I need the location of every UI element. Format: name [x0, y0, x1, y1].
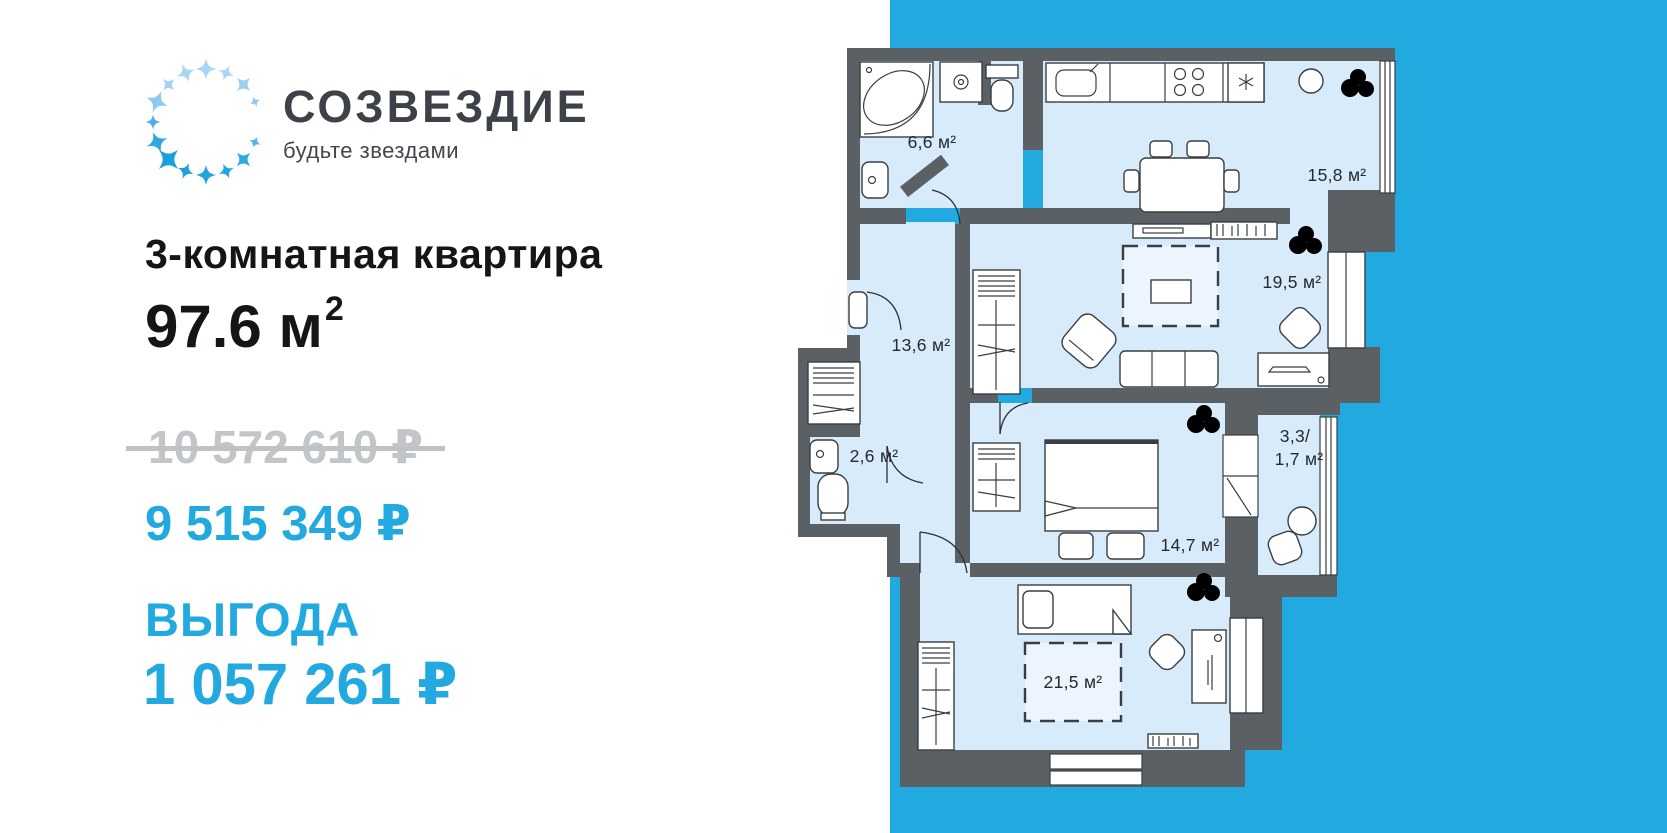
- bedroom-wardrobe-icon: [973, 443, 1020, 511]
- nightstand-icon: [1107, 533, 1144, 559]
- washing-machine-icon: [940, 62, 982, 102]
- tv-stand-icon: [1133, 224, 1211, 238]
- room-label-balcony-2: 1,7 м²: [1275, 449, 1324, 469]
- flat-title: 3-комнатная квартира: [145, 231, 602, 278]
- benefit-label: ВЫГОДА: [145, 592, 360, 647]
- new-price: 9 515 349 ₽: [145, 495, 411, 552]
- room2-desk-icon: [1192, 630, 1226, 703]
- brand-tagline: будьте звездами: [283, 138, 590, 164]
- brand-logo: СОЗВЕЗДИЕ будьте звездами: [133, 54, 653, 194]
- bath-sink-icon: [862, 162, 888, 198]
- brand-name: СОЗВЕЗДИЕ: [283, 84, 590, 129]
- strikethrough-line: [126, 446, 445, 451]
- room-label-bedroom-2: 21,5 м²: [1044, 672, 1103, 692]
- wc-toilet-icon: [818, 474, 848, 520]
- star-ring-icon: [133, 54, 277, 194]
- wc-sink-icon: [810, 440, 838, 473]
- kitchen-counter: [1046, 63, 1264, 102]
- benefit-value: 1 057 261 ₽: [143, 650, 458, 718]
- bathtub-icon: [853, 59, 935, 137]
- room-label-balcony-1: 3,3/: [1280, 426, 1310, 446]
- brand-text: СОЗВЕЗДИЕ будьте звездами: [283, 84, 590, 164]
- floorplan: 6,6 м² 15,8 м² 19,5 м² 13,6 м² 2,6 м² 14…: [780, 40, 1445, 792]
- room-label-kitchen: 15,8 м²: [1308, 165, 1367, 185]
- closet-icon: [808, 362, 860, 424]
- room2-shelf-icon: [1148, 734, 1198, 748]
- room-label-bedroom: 14,7 м²: [1161, 535, 1220, 555]
- balcony-table-icon: [1288, 507, 1316, 535]
- nightstand-icon: [1059, 533, 1093, 559]
- sofa-icon: [1120, 351, 1218, 387]
- two-door-wardrobe-icon: [1230, 618, 1263, 713]
- hall-wardrobe-icon: [973, 270, 1020, 394]
- room-label-bathroom: 6,6 м²: [908, 132, 957, 152]
- single-bed-icon: [1018, 585, 1131, 634]
- room2-wardrobe-icon: [918, 642, 954, 750]
- room-label-wc: 2,6 м²: [850, 446, 899, 466]
- flat-area: 97.6 м2: [145, 292, 342, 361]
- room-label-hallway: 13,6 м²: [892, 335, 951, 355]
- fridge-icon: [1228, 63, 1264, 102]
- decor-circle-icon: [1299, 69, 1323, 93]
- flat-area-sup: 2: [325, 290, 344, 328]
- old-price: 10 572 610 ₽: [126, 420, 445, 474]
- desk-icon: [1258, 353, 1329, 386]
- flat-area-value: 97.6 м: [145, 293, 323, 360]
- wardrobe-icon: [1328, 252, 1365, 348]
- coffee-table-icon: [1151, 280, 1191, 303]
- shelf-icon: [1211, 222, 1277, 239]
- room-label-living: 19,5 м²: [1263, 272, 1322, 292]
- toilet-icon: [986, 65, 1018, 111]
